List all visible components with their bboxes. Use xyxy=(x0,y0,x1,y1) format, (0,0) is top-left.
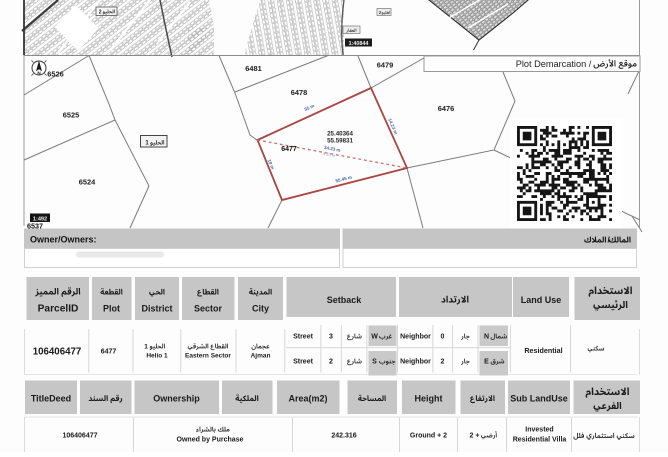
svg-text:Street: Street xyxy=(293,334,314,341)
svg-text:6476: 6476 xyxy=(438,104,454,113)
svg-text:25.40364: 25.40364 xyxy=(327,131,353,138)
svg-text:6478: 6478 xyxy=(291,88,307,97)
svg-text:Plot: Plot xyxy=(103,304,120,314)
svg-text:Neighbor: Neighbor xyxy=(400,359,431,366)
svg-text:Street: Street xyxy=(293,359,314,366)
svg-text:Setback: Setback xyxy=(327,295,363,305)
svg-text:Ground + 2: Ground + 2 xyxy=(410,433,447,440)
svg-text:6481: 6481 xyxy=(245,64,261,73)
svg-text:2: 2 xyxy=(329,359,333,366)
svg-text:1:40844: 1:40844 xyxy=(349,41,369,47)
svg-text:N: N xyxy=(484,334,489,341)
svg-text:2: 2 xyxy=(441,359,445,366)
svg-text:1: 1 xyxy=(144,344,148,351)
svg-text:3: 3 xyxy=(329,334,333,341)
svg-text:ParcelID: ParcelID xyxy=(38,304,79,315)
svg-text:Neighbor: Neighbor xyxy=(400,334,431,341)
svg-text:S: S xyxy=(372,359,377,366)
svg-text:Plot Demarcation /: Plot Demarcation / xyxy=(516,59,592,69)
svg-text:E: E xyxy=(484,359,489,366)
svg-text:Ajman: Ajman xyxy=(251,353,271,360)
svg-text:Owner/Owners:: Owner/Owners: xyxy=(30,235,97,245)
svg-text:TitleDeed: TitleDeed xyxy=(31,394,71,404)
svg-text:6525: 6525 xyxy=(63,111,79,120)
svg-text:106406477: 106406477 xyxy=(33,347,82,358)
svg-text:242.316: 242.316 xyxy=(331,433,356,440)
svg-text:District: District xyxy=(141,304,172,314)
svg-text:City: City xyxy=(252,304,269,314)
svg-text:6479: 6479 xyxy=(377,61,393,70)
svg-text:Residential Villa: Residential Villa xyxy=(513,437,567,444)
svg-text:Land Use: Land Use xyxy=(521,295,562,305)
svg-text:Ownership: Ownership xyxy=(153,394,200,404)
svg-text:Helio 1: Helio 1 xyxy=(146,353,168,360)
svg-text:Sub LandUse: Sub LandUse xyxy=(510,394,568,404)
svg-text:6526: 6526 xyxy=(47,70,63,79)
svg-text:6477: 6477 xyxy=(101,349,117,356)
svg-text:Sector: Sector xyxy=(194,304,223,314)
svg-text:6477: 6477 xyxy=(281,146,297,153)
svg-text:Residential: Residential xyxy=(524,346,562,355)
svg-text:Eastern Sector: Eastern Sector xyxy=(185,353,231,360)
svg-text:Invested: Invested xyxy=(525,427,553,434)
svg-text:Height: Height xyxy=(415,394,443,404)
svg-text:2 +: 2 + xyxy=(470,433,480,440)
svg-text:0: 0 xyxy=(441,334,445,341)
svg-text:2: 2 xyxy=(99,9,102,15)
svg-text:Area(m2): Area(m2) xyxy=(288,394,327,404)
svg-text:6524: 6524 xyxy=(79,178,96,187)
svg-text:Owned by Purchase: Owned by Purchase xyxy=(177,437,244,444)
svg-text:55.59831: 55.59831 xyxy=(327,138,353,145)
svg-text:106406477: 106406477 xyxy=(62,433,97,440)
svg-text:W: W xyxy=(371,334,378,341)
